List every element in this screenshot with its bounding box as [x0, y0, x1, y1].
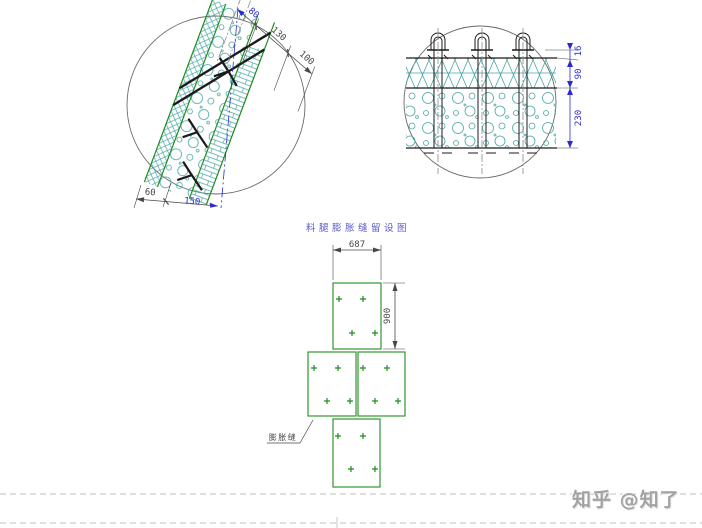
dim-label-60: 60	[144, 188, 156, 199]
zhihu-watermark: 知乎 @知了	[572, 485, 700, 512]
dim-label-90: 90	[574, 69, 584, 80]
plan-height-dimension: 900	[383, 283, 405, 349]
sloped-lining-band	[144, 0, 278, 205]
dim-label-230: 230	[574, 110, 584, 126]
cad-drawing: 80 130 100 60 150	[0, 0, 702, 528]
right-detail-view: 16 90 230	[404, 26, 584, 178]
dim-label-687: 687	[349, 240, 365, 250]
dim-label-150: 150	[184, 196, 201, 207]
dim-label-16: 16	[574, 46, 584, 57]
plan-title: 料腿膨胀缝留设图	[306, 222, 410, 234]
expansion-joint-plan: 料腿膨胀缝留设图 687	[267, 222, 410, 487]
left-detail-view: 80 130 100 60 150	[127, 0, 316, 208]
dim-label-100: 100	[297, 49, 316, 67]
dim-label-900: 900	[383, 308, 393, 324]
joint-label: 膨胀缝	[269, 432, 298, 442]
joint-label-group: 膨胀缝	[267, 420, 313, 443]
plan-width-dimension: 687	[333, 240, 381, 280]
concrete-layer	[406, 88, 556, 148]
drawing-sheet: 80 130 100 60 150	[0, 0, 702, 528]
